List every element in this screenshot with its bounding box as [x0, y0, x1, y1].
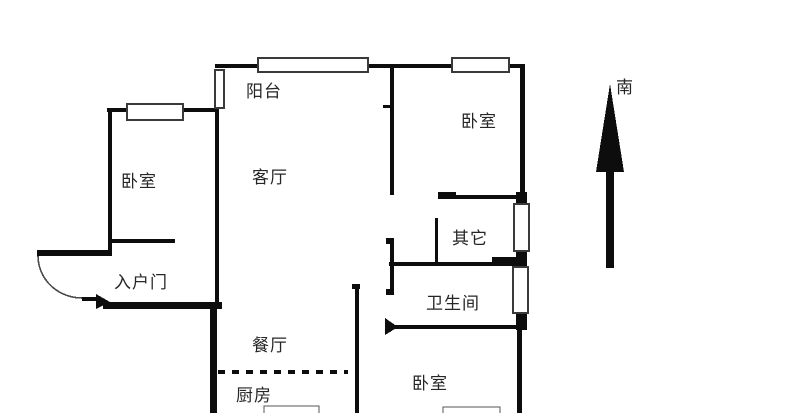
south-arrow-icon — [596, 84, 624, 268]
label-other-room: 其它 — [452, 229, 488, 248]
window-icon — [513, 267, 528, 313]
label-bedroom-bottom-right: 卧室 — [412, 374, 448, 393]
label-dining-room: 餐厅 — [252, 336, 288, 355]
dash-segment — [288, 370, 295, 374]
window-icon — [215, 70, 224, 108]
windows-layer — [127, 58, 529, 313]
door-swing-marks-layer — [96, 294, 398, 335]
window-icon — [258, 58, 368, 72]
wall-segment — [110, 239, 175, 243]
label-bedroom-top-left: 卧室 — [121, 172, 157, 191]
wall-segment — [352, 284, 360, 289]
label-compass-south: 南 — [616, 78, 634, 97]
label-entrance-door: 入户门 — [114, 273, 168, 292]
wall-segment — [520, 64, 525, 205]
label-kitchen: 厨房 — [236, 386, 272, 405]
entrance-door-arc-icon — [38, 256, 82, 298]
window-icon — [452, 58, 509, 72]
wall-segment — [355, 285, 359, 413]
wall-segment — [386, 238, 394, 244]
wall-segment — [383, 105, 391, 108]
floor-plan-page: 阳台 卧室 客厅 卧室 其它 入户门 卫生间 餐厅 厨房 卧室 南 — [0, 0, 800, 413]
dash-segment — [274, 370, 281, 374]
dash-segment — [344, 370, 348, 374]
entrance-door-leaf-stub — [82, 297, 99, 301]
dash-segment — [218, 370, 225, 374]
south-arrow-shaft — [606, 160, 614, 268]
dash-segment — [260, 370, 267, 374]
label-balcony: 阳台 — [246, 82, 282, 101]
dash-segment — [246, 370, 253, 374]
wall-segment — [215, 108, 219, 303]
furniture-outline — [264, 406, 319, 413]
kitchen-dining-dashed-divider — [218, 370, 348, 374]
wall-segment — [37, 250, 112, 256]
window-icon — [127, 104, 183, 120]
wall-segment — [438, 192, 456, 199]
window-icon — [514, 204, 529, 251]
wall-segment — [492, 257, 518, 263]
furniture-layer — [264, 406, 500, 413]
label-bedroom-top-right: 卧室 — [461, 112, 497, 131]
wall-segment — [435, 218, 438, 263]
dash-segment — [232, 370, 239, 374]
south-arrow-head — [596, 84, 624, 172]
floorplan-svg: 阳台 卧室 客厅 卧室 其它 入户门 卫生间 餐厅 厨房 卧室 南 — [0, 0, 800, 413]
dash-segment — [330, 370, 337, 374]
wall-segment — [386, 289, 394, 295]
wall-segment — [517, 330, 522, 413]
wall-segment — [388, 325, 523, 329]
dash-segment — [302, 370, 309, 374]
label-living-room: 客厅 — [252, 168, 288, 187]
wall-segment — [210, 303, 217, 413]
wall-segment — [103, 302, 222, 309]
label-bathroom: 卫生间 — [426, 294, 480, 313]
wall-segment — [390, 238, 394, 295]
furniture-outline — [443, 407, 500, 413]
dash-segment — [316, 370, 323, 374]
wall-segment — [390, 64, 394, 195]
door-frame-mark — [385, 318, 398, 335]
wall-segment — [108, 108, 112, 256]
entrance-door-leaf — [82, 297, 99, 301]
